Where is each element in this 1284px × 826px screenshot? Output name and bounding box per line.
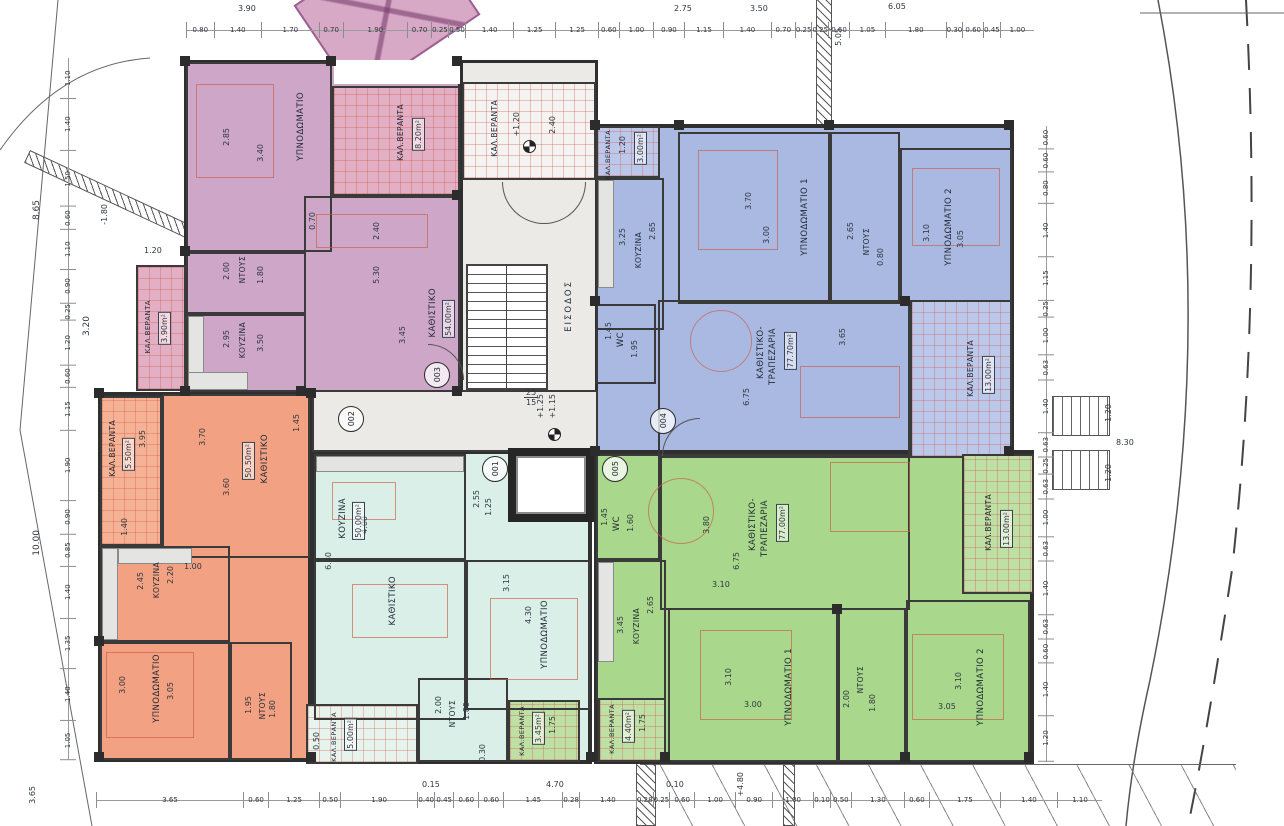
- dimension-value: 0.25: [811, 22, 828, 38]
- dimension-value: 1.00: [619, 22, 653, 38]
- dimension-value: 0.50: [319, 792, 340, 808]
- elevator-shaft: [508, 448, 594, 522]
- room-area: 5.00m²: [344, 718, 357, 751]
- dim: 1.20: [144, 246, 162, 255]
- dim: 3.10: [922, 224, 931, 242]
- column: [674, 120, 684, 130]
- dimension-value: 0.70: [771, 22, 795, 38]
- column: [900, 296, 910, 306]
- room-label: ΝΤΟΥΣ: [448, 700, 457, 727]
- room-label: ΥΠΝΟΔΩΜΑΤΙΟ 1: [800, 178, 810, 256]
- road-edge-curve: [1126, 0, 1188, 826]
- column: [94, 636, 104, 646]
- dimension-value: 1.75: [929, 792, 1000, 808]
- dim: 3.05: [956, 230, 965, 248]
- unit-badge-001: 001: [482, 456, 508, 482]
- unit-number: 001: [491, 461, 500, 476]
- room-area: 13.00m²: [982, 356, 995, 394]
- dimension-value: 3.65: [96, 792, 243, 808]
- dim: 3.15: [502, 574, 511, 592]
- dimension-value: 1.40: [60, 567, 76, 619]
- column: [296, 386, 306, 396]
- dimension-value: 0.25: [1038, 458, 1054, 475]
- plot-dim: 3.20: [82, 316, 92, 336]
- room-area: 3.90m²: [158, 312, 171, 345]
- column: [326, 56, 336, 66]
- level-label: -1.80: [100, 204, 109, 225]
- core-veranda: [462, 82, 596, 180]
- room-label: ΚΑΛ.ΒΕΡΑΝΤΑ: [144, 300, 152, 353]
- level-marker-entry: [523, 140, 536, 153]
- dimension-value: 0.90: [60, 270, 76, 304]
- dimension-value: 0.60: [243, 792, 268, 808]
- room-label: ΥΠΝΟΔΩΜΑΤΙΟ: [540, 600, 550, 669]
- exterior-stair-flight-2: [1052, 450, 1110, 490]
- room-label: ΚΑΛ.ΒΕΡΑΝΤΑ: [396, 104, 405, 161]
- dim: 3.05: [938, 702, 956, 711]
- column: [180, 56, 190, 66]
- dim: 2.45: [136, 572, 145, 590]
- room-label: ΚΑΛ.ΒΕΡΑΝΤΑ: [604, 130, 612, 180]
- dimension-value: 1.40: [1038, 562, 1054, 615]
- dimension-value: 1.15: [60, 388, 76, 431]
- room-area: 13.00m²: [1000, 510, 1013, 548]
- dim: 3.10: [954, 672, 963, 690]
- column: [452, 386, 462, 396]
- dimension-value: 1.40: [579, 792, 636, 808]
- unit-number: 005: [611, 461, 620, 476]
- dim: 2.00: [434, 696, 443, 714]
- room-label: ΚΑΘΙΣΤΙΚΟ: [428, 288, 438, 338]
- dim: 2.55: [472, 490, 481, 508]
- dimension-rail-top: 0.801.401.700.701.900.700.250.501.401.25…: [186, 22, 1034, 38]
- exterior-stair-flight-1: [1052, 396, 1110, 436]
- dim: 2.65: [646, 596, 655, 614]
- unit-number: 002: [347, 411, 356, 426]
- room-label: ΚΑΛ.ΒΕΡΑΝΤΑ: [108, 420, 117, 477]
- dimension-value: 0.63: [1038, 475, 1054, 500]
- dim: 3.80: [702, 516, 711, 534]
- level-label: +1.20: [512, 112, 521, 137]
- column: [306, 752, 316, 762]
- furniture-sofa-001: [352, 584, 448, 638]
- dimension-value: 1.10: [1057, 792, 1102, 808]
- dimension-value: 1.05: [60, 721, 76, 760]
- dimension-value: 1.00: [772, 792, 813, 808]
- room-label: ΚΑΛ.ΒΕΡΑΝΤΑ: [608, 704, 616, 754]
- dimension-value: 0.63: [1038, 537, 1054, 562]
- dimension-value: 0.90: [735, 792, 772, 808]
- dimension-value: 1.90: [343, 22, 407, 38]
- dim: 1.80: [256, 266, 265, 284]
- column: [94, 388, 104, 398]
- room-area: 54.00m²: [442, 300, 455, 338]
- dim: 1.95: [630, 340, 639, 358]
- dim: 6.30: [324, 552, 333, 570]
- level-marker-hall: [548, 428, 561, 441]
- column: [1024, 752, 1034, 762]
- dimension-value: 0.25: [653, 792, 670, 808]
- dimension-value: 1.20: [1038, 716, 1054, 762]
- room-label: ΥΠΝΟΔΩΜΑΤΙΟ 1: [784, 648, 794, 726]
- room-label: WC: [612, 516, 622, 531]
- furniture-bed-003: [196, 84, 274, 178]
- counter-003b: [188, 372, 248, 390]
- dim: 3.50: [256, 334, 265, 352]
- room-005-shower: [838, 608, 906, 762]
- dim: 3.95: [138, 430, 147, 448]
- column: [94, 752, 104, 762]
- dim: 1.40: [120, 518, 129, 536]
- dimension-value: 1.00: [1038, 317, 1054, 355]
- dimension-value: 0.60: [60, 207, 76, 230]
- column: [586, 752, 596, 762]
- column: [1004, 446, 1014, 456]
- dimension-value: 1.90: [340, 792, 417, 808]
- dim: 3.00: [118, 676, 127, 694]
- dimension-value: 1.45: [503, 792, 562, 808]
- dim: 2.20: [166, 566, 175, 584]
- dimension-rail-bottom: 3.650.601.250.501.900.400.450.600.601.45…: [96, 792, 1102, 808]
- room-label: ΥΠΝΟΔΩΜΑΤΙΟ 2: [944, 188, 954, 266]
- room-label: ΚΑΘΙΣΤΙΚΟ: [388, 576, 398, 626]
- unit-badge-004: 004: [650, 408, 676, 434]
- room-label: ΚΑΛ.ΒΕΡΑΝΤΑ: [518, 706, 526, 756]
- room-label: ΚΑΘΙΣΤΙΚΟ-: [756, 326, 766, 379]
- furniture-bed-002: [106, 652, 194, 738]
- dimension-value: 1.30: [851, 792, 904, 808]
- dimension-value: 1.40: [60, 669, 76, 721]
- plot-boundary-left-lower: [20, 430, 92, 826]
- dim: 3.70: [198, 428, 207, 446]
- column: [452, 56, 462, 66]
- column: [590, 120, 600, 130]
- dim: 0.70: [308, 212, 317, 230]
- dimension-value: 0.40: [417, 792, 434, 808]
- dimension-value: 0.60: [904, 792, 929, 808]
- plot-dim: 3.90: [238, 4, 256, 13]
- stair-dim: 1.20: [1104, 464, 1113, 482]
- column: [832, 604, 842, 614]
- column: [590, 296, 600, 306]
- furniture-sofa-004: [800, 366, 900, 418]
- furniture-sofa-005: [830, 462, 910, 532]
- dimension-value: 0.60: [1038, 149, 1054, 172]
- dim: 2.65: [846, 222, 855, 240]
- furniture-bed-001: [490, 598, 578, 680]
- dimension-value: 1.20: [60, 321, 76, 366]
- unit-badge-002: 002: [338, 406, 364, 432]
- dim: 3.40: [256, 144, 265, 162]
- dimension-value: 0.60: [1038, 640, 1054, 663]
- plot-dim: 2.75: [674, 4, 692, 13]
- dimension-value: 0.85: [60, 535, 76, 567]
- dimension-value: 0.70: [407, 22, 431, 38]
- furniture-dining-005: [648, 478, 714, 544]
- dimension-value: 0.70: [319, 22, 343, 38]
- dimension-value: 0.28: [636, 792, 653, 808]
- stair-divider: [506, 264, 507, 390]
- floor-plan-canvas: 003 002 001 004 005 ΥΠΝΟΔΩΜΑΤΙΟ 2.85 3.4…: [0, 0, 1284, 826]
- column: [660, 752, 670, 762]
- room-area: 50.50m²: [242, 442, 255, 480]
- room-label: ΥΠΝΟΔΩΜΑΤΙΟ 2: [976, 648, 986, 726]
- room-label: ΚΑΛ.ΒΕΡΑΝΤΑ: [330, 712, 338, 762]
- dim: 1.20: [618, 136, 627, 154]
- dimension-value: 1.40: [1038, 663, 1054, 716]
- room-004-wc: [596, 304, 656, 384]
- dimension-rail-right: 0.600.600.801.401.150.251.000.631.400.63…: [1038, 126, 1054, 762]
- veranda-004-big: [910, 300, 1012, 458]
- dim: 2.65: [648, 222, 657, 240]
- dim: 0.50: [312, 732, 321, 750]
- dim: 0.80: [876, 248, 885, 266]
- dimension-value: 0.60: [60, 365, 76, 388]
- boundary-hatch-strip-top: [816, 0, 832, 136]
- dimension-value: 1.90: [60, 431, 76, 501]
- veranda-005-big: [962, 454, 1034, 594]
- room-label: ΚΟΥΖΙΝΑ: [634, 232, 643, 268]
- dimension-value: 1.00: [1000, 22, 1034, 38]
- room-area: 3.00m²: [634, 132, 647, 165]
- stair-riser-note: 25: [524, 388, 538, 398]
- room-label: ΤΡΑΠΕΖΑΡΙΑ: [760, 500, 770, 557]
- dimension-value: 0.60: [828, 22, 849, 38]
- dimension-value: 1.10: [60, 58, 76, 99]
- dim: 6.75: [742, 388, 751, 406]
- dim: 3.60: [222, 478, 231, 496]
- dimension-value: 0.63: [1038, 615, 1054, 640]
- dimension-value: 0.25: [1038, 301, 1054, 318]
- dim: 3.45: [616, 616, 625, 634]
- plot-dim: 8.65: [32, 200, 42, 220]
- room-area: 5.50m²: [122, 438, 135, 471]
- dim: 3.45: [398, 326, 407, 344]
- column: [900, 752, 910, 762]
- stair-dim: 8.30: [1116, 438, 1134, 447]
- dim: 6.75: [732, 552, 741, 570]
- room-label: ΚΟΥΖΙΝΑ: [238, 322, 247, 358]
- column: [452, 190, 462, 200]
- dimension-rail-left: 1.101.401.500.601.100.900.251.200.601.15…: [60, 58, 76, 760]
- plot-dim: 0.15: [422, 780, 440, 789]
- dimension-value: 1.00: [694, 792, 735, 808]
- dimension-value: 0.60: [1038, 126, 1054, 149]
- dim: 3.05: [166, 682, 175, 700]
- room-label: ΝΤΟΥΣ: [856, 666, 865, 693]
- dimension-value: 0.25: [431, 22, 448, 38]
- room-label: ΚΑΘΙΣΤΙΚΟ: [260, 434, 270, 484]
- room-area: 8.20m²: [412, 118, 425, 151]
- dimension-value: 0.63: [1038, 433, 1054, 458]
- dim: 1.80: [462, 702, 471, 720]
- room-area: 77.00m²: [776, 504, 789, 542]
- dimension-value: 0.60: [453, 792, 478, 808]
- dimension-value: 0.25: [60, 304, 76, 321]
- dim: 3.00: [744, 700, 762, 709]
- dimension-value: 1.40: [60, 99, 76, 151]
- plot-dim: 4.70: [546, 780, 564, 789]
- dim: 2.95: [222, 330, 231, 348]
- dim: 1.60: [626, 514, 635, 532]
- column: [1004, 120, 1014, 130]
- dimension-value: 0.10: [813, 792, 830, 808]
- dim: 1.45: [600, 508, 609, 526]
- room-label: ΚΑΛ.ΒΕΡΑΝΤΑ: [966, 340, 975, 397]
- dim: 2.85: [222, 128, 231, 146]
- furniture-dining-004: [690, 310, 752, 372]
- dimension-value: 1.40: [1038, 204, 1054, 257]
- dim: 1.75: [548, 716, 557, 734]
- level-label: +1.15: [548, 394, 557, 419]
- dimension-value: 1.25: [513, 22, 556, 38]
- room-label: WC: [616, 332, 626, 347]
- unit-number: 003: [433, 367, 442, 382]
- stair-dim: 1.20: [1104, 404, 1113, 422]
- room-label: ΚΟΥΖΙΝΑ: [152, 562, 161, 598]
- unit-badge-005: 005: [602, 456, 628, 482]
- room-label: ΚΟΥΖΙΝΑ: [338, 498, 348, 539]
- dim: 1.00: [184, 562, 202, 571]
- unit-badge-003: 003: [424, 362, 450, 388]
- dim: 2.40: [548, 116, 557, 134]
- dimension-value: 0.90: [60, 501, 76, 535]
- dimension-value: 0.50: [448, 22, 466, 38]
- room-004-shower: [830, 132, 900, 304]
- dim: 1.75: [638, 714, 647, 732]
- plot-dim: 10.00: [32, 530, 42, 556]
- dimension-value: 1.25: [268, 792, 319, 808]
- column: [824, 120, 834, 130]
- dimension-value: 1.70: [261, 22, 318, 38]
- dim: 4.30: [524, 606, 533, 624]
- plot-dim: 3.65: [28, 786, 37, 804]
- dimension-value: 1.40: [1000, 792, 1057, 808]
- dimension-value: 0.63: [1038, 356, 1054, 381]
- room-label: ΚΟΥΖΙΝΑ: [632, 608, 641, 644]
- unit-003-notch: [334, 60, 460, 84]
- dim: 1.45: [604, 322, 613, 340]
- dimension-value: 1.15: [1038, 257, 1054, 301]
- dimension-value: 1.80: [885, 22, 946, 38]
- dim: 3.65: [838, 328, 847, 346]
- room-area: 50.00m²: [352, 502, 365, 540]
- dimension-value: 1.00: [1038, 499, 1054, 537]
- dimension-value: 1.05: [849, 22, 885, 38]
- dimension-value: 0.60: [962, 22, 983, 38]
- dimension-value: 0.60: [669, 792, 694, 808]
- dim: 1.80: [868, 694, 877, 712]
- dimension-value: 0.45: [983, 22, 1000, 38]
- dimension-value: 0.45: [434, 792, 453, 808]
- dimension-value: 0.90: [653, 22, 684, 38]
- room-label: ΚΑΛ.ΒΕΡΑΝΤΑ: [984, 494, 993, 551]
- stair-tread-note: 15: [524, 398, 538, 407]
- dimension-value: 1.40: [1038, 380, 1054, 433]
- room-label: ΥΠΝΟΔΩΜΑΤΙΟ: [296, 92, 306, 161]
- column: [590, 446, 600, 456]
- dim: 3.10: [724, 668, 733, 686]
- dimension-value: 1.15: [684, 22, 723, 38]
- dim: 2.00: [222, 262, 231, 280]
- dim: 2.00: [842, 690, 851, 708]
- dimension-value: 0.25: [795, 22, 812, 38]
- dimension-value: 0.60: [478, 792, 503, 808]
- dimension-value: 1.50: [60, 151, 76, 207]
- room-label: ΚΑΘΙΣΤΙΚΟ-: [748, 498, 758, 551]
- dimension-value: 0.28: [562, 792, 579, 808]
- dim: 1.45: [292, 414, 301, 432]
- room-label: ΝΤΟΥΣ: [238, 256, 247, 283]
- counter-002: [102, 548, 118, 640]
- dim: 5.30: [372, 266, 381, 284]
- dim: 3.70: [744, 192, 753, 210]
- dim: 0.30: [478, 744, 487, 762]
- room-label: ΤΡΑΠΕΖΑΡΙΑ: [768, 328, 778, 385]
- unit-number: 004: [659, 413, 668, 428]
- staircase: [466, 264, 548, 390]
- room-area: 77.70m²: [784, 332, 797, 370]
- dim: 3.00: [762, 226, 771, 244]
- dimension-value: 0.50: [830, 792, 851, 808]
- dimension-value: 1.25: [555, 22, 598, 38]
- dimension-value: 1.10: [60, 229, 76, 270]
- dimension-value: 0.60: [598, 22, 619, 38]
- column: [180, 386, 190, 396]
- dim: 3.25: [618, 228, 627, 246]
- plot-dim: 3.50: [750, 4, 768, 13]
- room-area: 4.40m²: [622, 710, 635, 743]
- dimension-value: 0.80: [1038, 173, 1054, 204]
- dim: 3.10: [712, 580, 730, 589]
- dimension-value: 1.35: [60, 619, 76, 669]
- counter-004: [598, 180, 614, 288]
- room-label: ΝΤΟΥΣ: [258, 692, 267, 719]
- dimension-value: 0.30: [946, 22, 963, 38]
- room-label: ΥΠΝΟΔΩΜΑΤΙΟ: [152, 654, 162, 723]
- core-veranda-label: ΚΑΛ.ΒΕΡΑΝΤΑ: [490, 100, 499, 157]
- room-001-shower: [418, 678, 508, 762]
- room-label: ΝΤΟΥΣ: [862, 228, 871, 255]
- dim: 1.80: [268, 700, 277, 718]
- road-centerline-dashed: [1188, 0, 1252, 826]
- dimension-value: 1.40: [465, 22, 513, 38]
- room-area: 3.45m²: [532, 712, 545, 745]
- plot-dim: 0.10: [666, 780, 684, 789]
- dimension-value: 1.40: [723, 22, 771, 38]
- dim: 1.95: [244, 696, 253, 714]
- room-002-living: [162, 394, 310, 558]
- dimension-value: 0.80: [186, 22, 214, 38]
- entrance-label: ΕΙΣΟΔΟΣ: [564, 280, 574, 332]
- dim: 1.25: [484, 498, 493, 516]
- plot-dim: 6.05: [888, 2, 906, 11]
- column: [180, 246, 190, 256]
- dim: 2.40: [372, 222, 381, 240]
- counter-001: [316, 456, 464, 472]
- counter-005: [598, 562, 614, 662]
- column: [306, 388, 316, 398]
- dimension-value: 1.40: [214, 22, 262, 38]
